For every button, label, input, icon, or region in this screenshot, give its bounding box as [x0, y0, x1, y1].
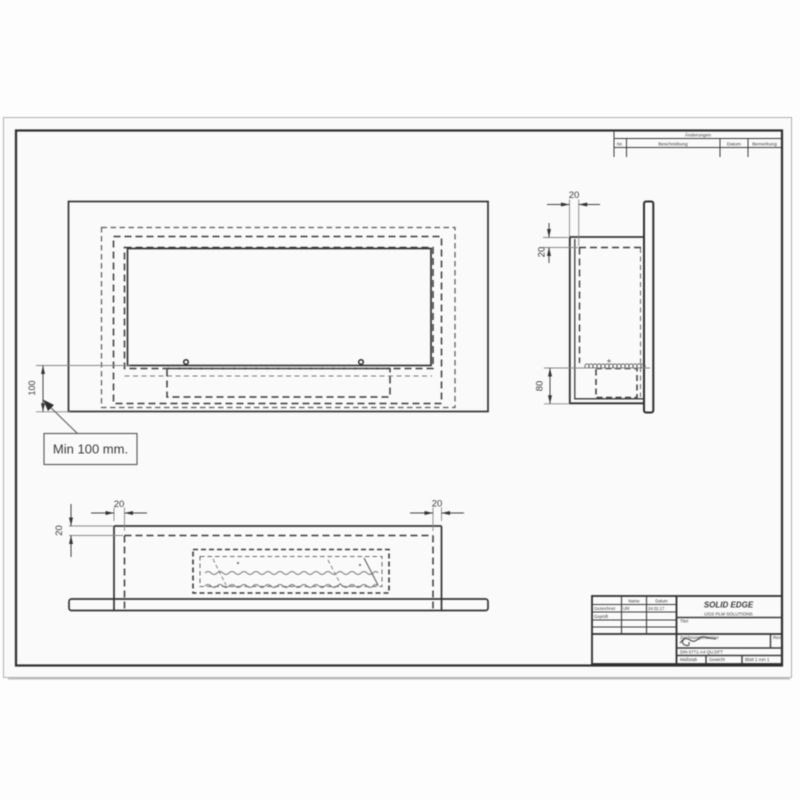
svg-text:Geprüft: Geprüft — [594, 614, 609, 619]
svg-text:Datum: Datum — [727, 141, 741, 147]
svg-text:Titel: Titel — [680, 619, 688, 624]
svg-text:Blatt 1 von 1: Blatt 1 von 1 — [745, 657, 770, 662]
svg-text:80: 80 — [535, 381, 546, 392]
svg-text:Rev: Rev — [773, 635, 782, 640]
svg-text:SOLID EDGE: SOLID EDGE — [704, 601, 754, 610]
svg-text:Gewicht: Gewicht — [709, 657, 726, 662]
svg-text:100: 100 — [27, 380, 37, 395]
svg-text:Datum: Datum — [655, 598, 668, 603]
svg-text:Uhl: Uhl — [623, 606, 629, 611]
svg-text:Maßstab: Maßstab — [680, 657, 698, 662]
svg-text:Änderungen: Änderungen — [685, 132, 711, 139]
svg-text:Nr.: Nr. — [617, 141, 623, 147]
svg-text:Bemerkung: Bemerkung — [752, 141, 777, 147]
svg-text:20: 20 — [114, 499, 125, 510]
svg-text:20: 20 — [54, 525, 65, 536]
svg-text:20: 20 — [537, 247, 548, 258]
svg-text:20: 20 — [432, 499, 443, 510]
svg-text:Min 100 mm.: Min 100 mm. — [53, 442, 128, 457]
svg-text:Gezeichnet: Gezeichnet — [594, 606, 616, 611]
svg-text:Beschreibung: Beschreibung — [658, 141, 688, 147]
svg-text:Name: Name — [628, 598, 640, 603]
svg-text:DIN 6771-A4 QU.DFT: DIN 6771-A4 QU.DFT — [680, 650, 723, 655]
svg-text:24.02.17: 24.02.17 — [648, 606, 665, 611]
svg-text:UGS PLM SOLUTIONS: UGS PLM SOLUTIONS — [704, 612, 753, 617]
svg-text:20: 20 — [569, 190, 580, 201]
